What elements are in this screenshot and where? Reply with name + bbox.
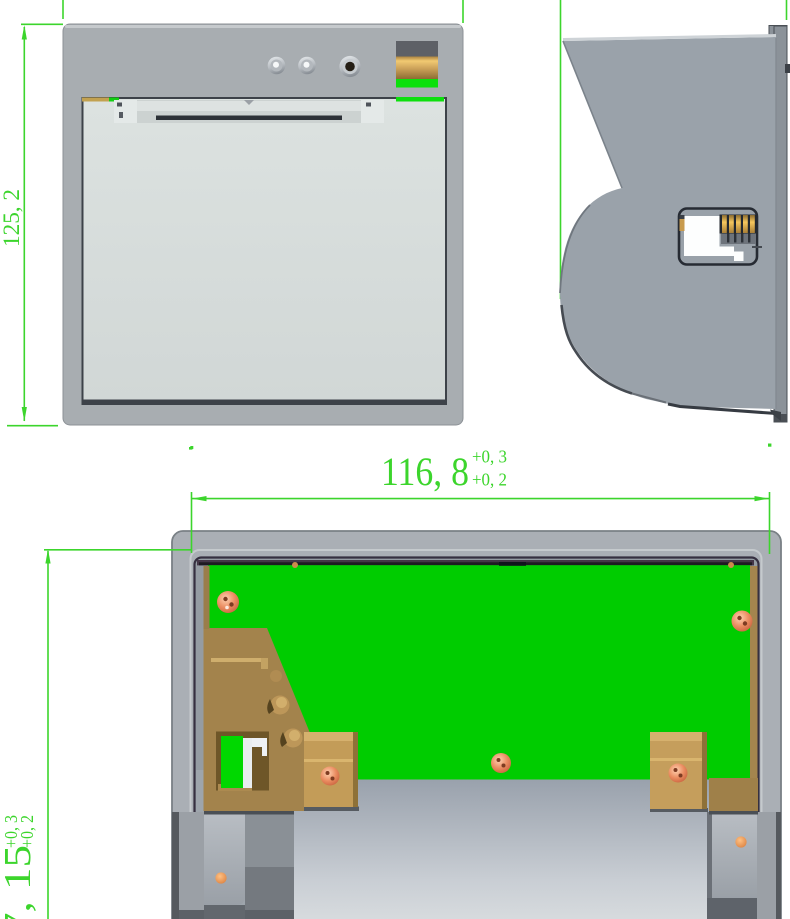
svg-text:116, 8: 116, 8 xyxy=(381,449,469,494)
svg-text:+0, 2: +0, 2 xyxy=(17,815,37,848)
svg-text:125, 2: 125, 2 xyxy=(0,189,24,247)
svg-text:+0, 3: +0, 3 xyxy=(472,447,507,467)
svg-text:+0, 2: +0, 2 xyxy=(472,470,507,490)
svg-text:7, 15: 7, 15 xyxy=(0,845,39,919)
